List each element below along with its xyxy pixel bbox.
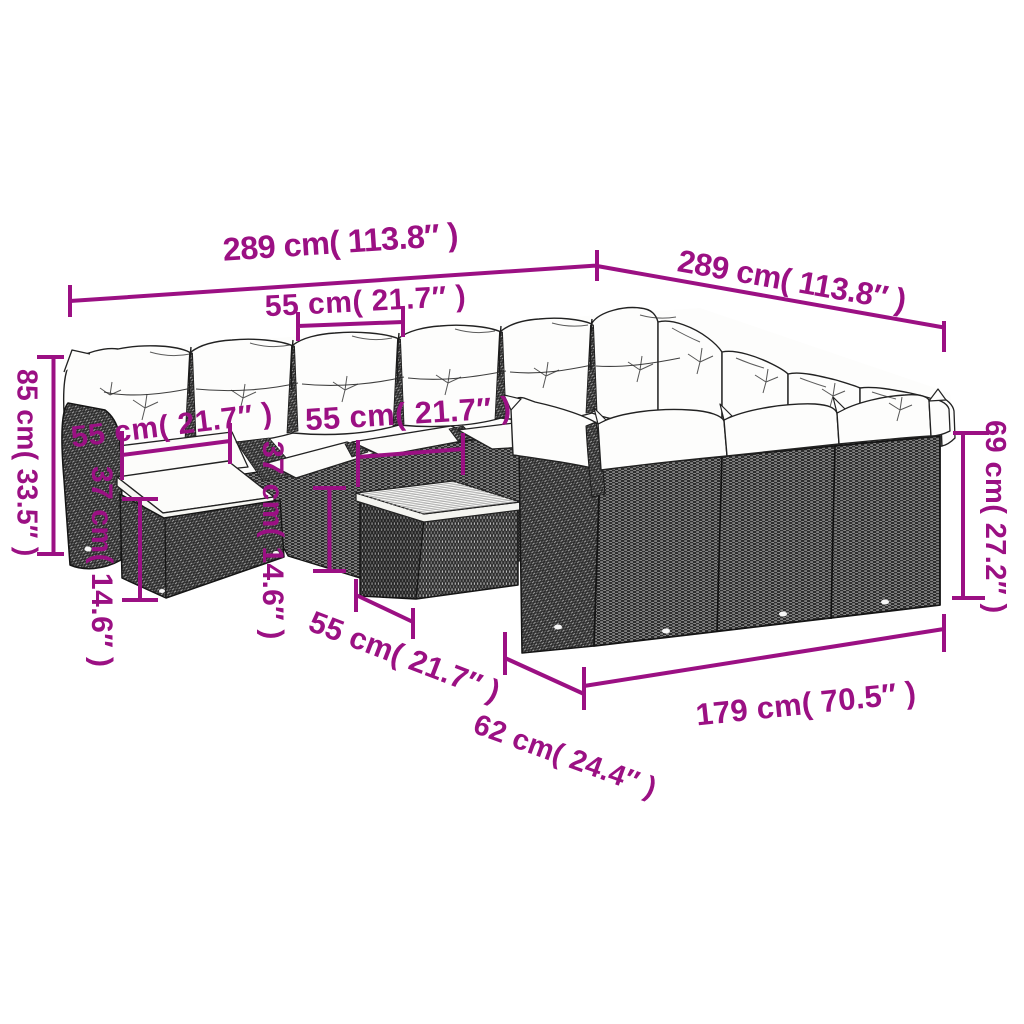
svg-text:37 cm( 14.6″ ): 37 cm( 14.6″ ) bbox=[85, 466, 118, 667]
svg-text:37 cm( 14.6″ ): 37 cm( 14.6″ ) bbox=[256, 441, 289, 640]
svg-text:85 cm( 33.5″ ): 85 cm( 33.5″ ) bbox=[12, 369, 44, 557]
svg-text:69 cm( 27.2″ ): 69 cm( 27.2″ ) bbox=[979, 420, 1011, 614]
